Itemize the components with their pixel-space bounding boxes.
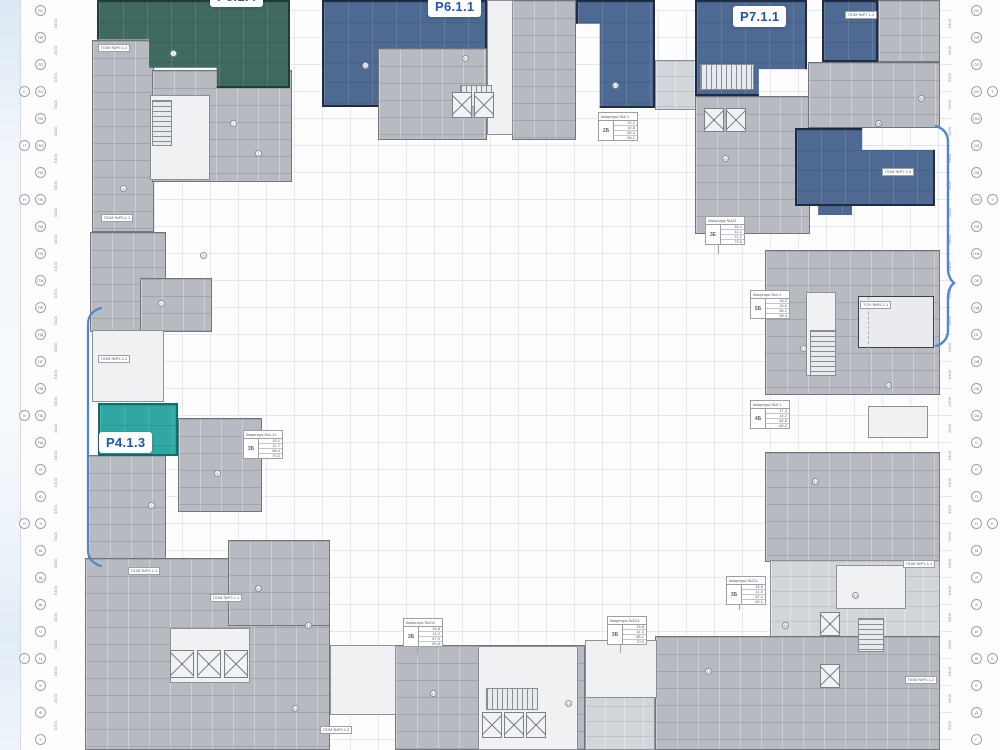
- grid-axis-bubble: Р: [971, 464, 982, 475]
- apartment-info-table: Квартира №4.11 3Б 15.111.768.470.2: [243, 430, 283, 459]
- grid-axis-bubble: П: [19, 140, 30, 151]
- dimension-label: 5400: [53, 640, 58, 649]
- facility-label: ПОМ №Р7.1.5: [882, 168, 914, 176]
- grid-axis-bubble: Э: [35, 518, 46, 529]
- grid-axis-bubble: Г: [19, 653, 30, 664]
- dimension-label: 5400: [53, 532, 58, 541]
- room: [585, 640, 657, 698]
- apartment-info-table: Квартира №9.1 4Б 17.314.284.686.2: [750, 400, 790, 429]
- grid-axis-bubble: ОЕ: [971, 275, 982, 286]
- apartment-type-badge: 3Е: [706, 225, 721, 244]
- room-number-marker: 10: [255, 585, 262, 592]
- dimension-label: 5400: [947, 532, 952, 541]
- dimension-label: 5400: [947, 208, 952, 217]
- grid-axis-bubble: П: [971, 491, 982, 502]
- grid-axis-bubble: М: [971, 545, 982, 556]
- dimension-label: 5400: [53, 397, 58, 406]
- room-number-marker: 18: [885, 382, 892, 389]
- grid-axis-bubble: ПО: [35, 86, 46, 97]
- dimension-label: 5400: [947, 640, 952, 649]
- dimension-label: 5400: [947, 154, 952, 163]
- dimension-label: 3400: [947, 424, 952, 433]
- grid-axis-bubble: Д: [971, 707, 982, 718]
- apartment-type-badge: 2Б: [599, 121, 614, 140]
- apartment-type-badge: 5Б: [751, 299, 766, 318]
- grid-axis-bubble: Л: [971, 572, 982, 583]
- dimension-label: 5400: [947, 451, 952, 460]
- grid-axis-bubble: Е: [987, 518, 998, 529]
- unit-right-wing-tab: [818, 206, 852, 215]
- elevator-shaft: [170, 650, 194, 678]
- dimension-label: 5400: [947, 397, 952, 406]
- dimension-label: 5400: [947, 262, 952, 271]
- dimension-label: 5400: [947, 343, 952, 352]
- stairs: [700, 64, 754, 90]
- dimension-label: 3400: [53, 316, 58, 325]
- dimension-label: 5400: [947, 19, 952, 28]
- dimension-label: 5400: [947, 478, 952, 487]
- room: [836, 565, 906, 609]
- grid-axis-bubble: ПР: [35, 32, 46, 43]
- grid-axis-bubble: ПД: [35, 329, 46, 340]
- elevator-shaft: [482, 712, 502, 738]
- room-number-marker: 17: [800, 345, 807, 352]
- apartment-type-badge: 4Б: [751, 409, 766, 428]
- dimension-label: 3400: [53, 127, 58, 136]
- dimension-label: 5400: [947, 73, 952, 82]
- room-number-marker: 23: [462, 55, 469, 62]
- room-number-marker: 4: [120, 185, 127, 192]
- grid-axis-bubble: Х: [35, 680, 46, 691]
- floor-plan-canvas: P5.1.4 P6.1.1 P7.1.1 P4.1.3 Квартира №5.…: [0, 0, 1000, 750]
- grid-axis-bubble: С: [971, 437, 982, 448]
- grid-axis-bubble: Н: [971, 518, 982, 529]
- grid-axis-bubble: И: [971, 626, 982, 637]
- elevator-shaft: [504, 712, 524, 738]
- dimension-label: 3400: [947, 316, 952, 325]
- page-edge-line: [20, 0, 21, 750]
- room-number-marker: 5: [200, 252, 207, 259]
- dimension-label: 5400: [53, 208, 58, 217]
- grid-axis-bubble: С: [19, 86, 30, 97]
- stairs: [152, 100, 172, 146]
- dimension-label: 5400: [53, 289, 58, 298]
- grid-axis-bubble: Я: [35, 464, 46, 475]
- grid-axis-bubble: Н: [19, 194, 30, 205]
- grid-axis-bubble: Ж: [971, 653, 982, 664]
- grid-axis-bubble: ПЛ: [35, 167, 46, 178]
- unit-tag-P7.1.1[interactable]: P7.1.1: [733, 6, 786, 27]
- grid-axis-bubble: ОС: [971, 5, 982, 16]
- room-number-marker: 16: [852, 592, 859, 599]
- grid-axis-bubble: ПВ: [35, 383, 46, 394]
- dimension-label: 3400: [947, 46, 952, 55]
- grid-axis-bubble: ОН: [971, 86, 982, 97]
- room-number-marker: 20: [722, 155, 729, 162]
- apartment-area-value: 69.8: [419, 642, 442, 646]
- room: [868, 406, 928, 438]
- dimension-label: 5400: [947, 667, 952, 676]
- apartment-info-table: Квартира №111 3Е 16.412.171.273.5: [705, 216, 745, 245]
- room: [330, 645, 396, 715]
- grid-axis-bubble: Ю: [35, 491, 46, 502]
- dimension-label: 3400: [53, 505, 58, 514]
- facility-label: ПОМ №Р1.1.1: [903, 560, 935, 568]
- room-number-marker: 12: [430, 690, 437, 697]
- dimension-label: 5400: [947, 586, 952, 595]
- unit-tag-P6.1.1[interactable]: P6.1.1: [428, 0, 481, 17]
- grid-axis-bubble: ПС: [35, 5, 46, 16]
- room-number-marker: 13: [565, 700, 572, 707]
- apartment-info-table: Квартира №213 3Б 15.811.368.170.0: [607, 616, 647, 645]
- elevator-shaft: [726, 108, 746, 132]
- grid-axis-bubble: ОЛ: [971, 140, 982, 151]
- dimension-label: 5400: [53, 19, 58, 28]
- grid-axis-bubble: У: [35, 734, 46, 745]
- apartment-type-badge: 3Б: [244, 439, 259, 458]
- grid-axis-bubble: Т: [987, 86, 998, 97]
- building-block: [140, 278, 212, 332]
- facility-label: ПОМ №Р1.1.2: [905, 676, 937, 684]
- facility-label: ПОМ №Р3.1.2: [320, 726, 352, 734]
- grid-axis-bubble: ОД: [971, 302, 982, 313]
- unit-tag-P4.1.3[interactable]: P4.1.3: [99, 432, 152, 453]
- grid-axis-bubble: ОП: [971, 59, 982, 70]
- dimension-label: 5400: [947, 370, 952, 379]
- elevator-shaft: [820, 664, 840, 688]
- facility-label: ТСН №Р8.1.1: [860, 301, 891, 309]
- dimension-label: 3400: [53, 613, 58, 622]
- building-block: [655, 636, 940, 750]
- room-number-marker: 9: [148, 502, 155, 509]
- grid-axis-bubble: ОА: [971, 410, 982, 421]
- grid-axis-bubble: ПИ: [35, 221, 46, 232]
- elevator-shaft: [452, 92, 472, 118]
- dimension-label: 3400: [53, 235, 58, 244]
- apartment-type-badge: 3Б: [727, 585, 742, 604]
- grid-axis-bubble: ОР: [971, 32, 982, 43]
- room-number-marker: 22: [362, 62, 369, 69]
- dimension-label: 5400: [53, 73, 58, 82]
- facility-label: ПОМ №Р7.1.2: [845, 11, 877, 19]
- dimension-label: 5400: [947, 721, 952, 730]
- room-number-marker: 6: [158, 300, 165, 307]
- dimension-label: 3400: [53, 424, 58, 433]
- grid-axis-bubble: Г: [971, 734, 982, 745]
- grid-axis-bubble: Ч: [35, 626, 46, 637]
- room-number-marker: 3: [255, 150, 262, 157]
- grid-axis-bubble: ПГ: [35, 356, 46, 367]
- room-number-marker: 24: [292, 705, 299, 712]
- dimension-label: 5400: [53, 478, 58, 487]
- grid-axis-bubble: ОЗ: [971, 221, 982, 232]
- dimension-label: 5400: [947, 289, 952, 298]
- grid-axis-bubble: Е: [971, 680, 982, 691]
- apartment-area-value: 69.1: [742, 600, 765, 604]
- grid-axis-bubble: Б: [19, 518, 30, 529]
- facility-label: ПОМ №Р5.1.1: [101, 214, 133, 222]
- grid-axis-bubble: ОЖ: [971, 248, 982, 259]
- stairs: [486, 688, 538, 710]
- apartment-info-table: Квартира №212 3Б 15.811.267.969.8: [403, 618, 443, 647]
- apartment-area-value: 86.2: [766, 424, 789, 428]
- room-number-marker: 19: [812, 478, 819, 485]
- dimension-label: 3400: [947, 127, 952, 136]
- dimension-label: 3400: [947, 694, 952, 703]
- dimension-label: 5400: [53, 667, 58, 676]
- dimension-label: 3400: [53, 46, 58, 55]
- dimension-label: 5400: [53, 262, 58, 271]
- grid-axis-bubble: ПК: [35, 194, 46, 205]
- room-number-marker: 26: [918, 95, 925, 102]
- elevator-shaft: [197, 650, 221, 678]
- apartment-area-value: 98.4: [766, 314, 789, 318]
- apartment-area-value: 58.1: [614, 136, 637, 140]
- elevator-shaft: [704, 108, 724, 132]
- dimension-label: 5400: [53, 559, 58, 568]
- page-edge-strip: [0, 0, 20, 750]
- apartment-area-value: 70.2: [259, 454, 282, 458]
- apartment-area-value: 73.5: [721, 240, 744, 244]
- grid-axis-bubble: ПЗ: [35, 248, 46, 259]
- unit-top-right[interactable]: [822, 0, 878, 62]
- room: [92, 330, 164, 402]
- dimension-label: 5400: [53, 586, 58, 595]
- dimension-label: 3400: [947, 235, 952, 244]
- building-block: [92, 40, 154, 232]
- grid-axis-bubble: Щ: [35, 572, 46, 583]
- grid-axis-bubble: К: [19, 410, 30, 421]
- room-number-marker: 8: [214, 470, 221, 477]
- grid-axis-bubble: ПА: [35, 437, 46, 448]
- room-number-marker: 1: [170, 50, 177, 57]
- dimension-label: 5400: [947, 181, 952, 190]
- building-block: [655, 60, 697, 110]
- facility-label: ПОМ №Р3.1.1: [210, 594, 242, 602]
- unit-tag-P5.1.4[interactable]: P5.1.4: [210, 0, 263, 7]
- grid-axis-bubble: ОК: [971, 167, 982, 178]
- grid-axis-bubble: Ц: [35, 653, 46, 664]
- dimension-label: 5400: [53, 451, 58, 460]
- facility-label: ПОМ №Р4.1.1: [128, 567, 160, 575]
- dimension-label: 3400: [947, 613, 952, 622]
- dimension-label: 5400: [53, 343, 58, 352]
- elevator-shaft: [224, 650, 248, 678]
- facility-label: ПОМ №Р4.1.2: [98, 355, 130, 363]
- grid-axis-bubble: ПЖ: [35, 275, 46, 286]
- facility-label: ПОМ №Р5.1.2: [98, 44, 130, 52]
- dimension-label: 3400: [53, 694, 58, 703]
- apartment-type-badge: 3Б: [404, 627, 419, 646]
- grid-axis-bubble: ОМ: [971, 113, 982, 124]
- grid-axis-bubble: У: [987, 194, 998, 205]
- apartment-info-table: Квартира №4.1 5Б 18.215.696.198.4: [750, 290, 790, 319]
- grid-axis-bubble: Ш: [35, 599, 46, 610]
- apartment-type-badge: 3Б: [608, 625, 623, 644]
- building-block: [228, 540, 330, 626]
- apartment-info-table: Квартира №211 3Б 15.611.067.469.1: [726, 576, 766, 605]
- room-number-marker: 25: [875, 120, 882, 127]
- dimension-label: 5400: [53, 721, 58, 730]
- grid-axis-bubble: ОБ: [971, 383, 982, 394]
- room-number-marker: 21: [612, 82, 619, 89]
- grid-axis-bubble: ОВ: [971, 356, 982, 367]
- grid-axis-bubble: ОГ: [971, 329, 982, 340]
- elevator-shaft: [526, 712, 546, 738]
- room-number-marker: 14: [705, 668, 712, 675]
- grid-axis-bubble: ПП: [35, 59, 46, 70]
- room-number-marker: 2: [230, 120, 237, 127]
- building-block: [878, 0, 940, 62]
- elevator-shaft: [820, 612, 840, 636]
- grid-axis-bubble: К: [971, 599, 982, 610]
- stairs: [810, 330, 836, 376]
- grid-axis-bubble: ПМ: [35, 140, 46, 151]
- grid-axis-bubble: ПЕ: [35, 302, 46, 313]
- dimension-label: 5400: [53, 100, 58, 109]
- room-number-marker: 15: [782, 622, 789, 629]
- stairs: [858, 618, 884, 652]
- dimension-label: 5400: [947, 559, 952, 568]
- elevator-shaft: [474, 92, 494, 118]
- room-number-marker: 11: [305, 622, 312, 629]
- dimension-label: 5400: [53, 181, 58, 190]
- grid-axis-bubble: ПН: [35, 113, 46, 124]
- grid-axis-bubble: ОИ: [971, 194, 982, 205]
- apartment-area-value: 70.0: [623, 640, 646, 644]
- building-block: [512, 0, 576, 140]
- apartment-info-table: Квартира №5.1 2Б 14.210.856.358.1: [598, 112, 638, 141]
- dimension-label: 3400: [947, 505, 952, 514]
- dimension-label: 5400: [947, 100, 952, 109]
- grid-axis-bubble: Ф: [35, 707, 46, 718]
- grid-axis-bubble: Б: [987, 653, 998, 664]
- dimension-label: 5400: [53, 154, 58, 163]
- grid-axis-bubble: ПБ: [35, 410, 46, 421]
- building-block: [765, 452, 940, 562]
- dimension-label: 5400: [53, 370, 58, 379]
- grid-axis-bubble: Ы: [35, 545, 46, 556]
